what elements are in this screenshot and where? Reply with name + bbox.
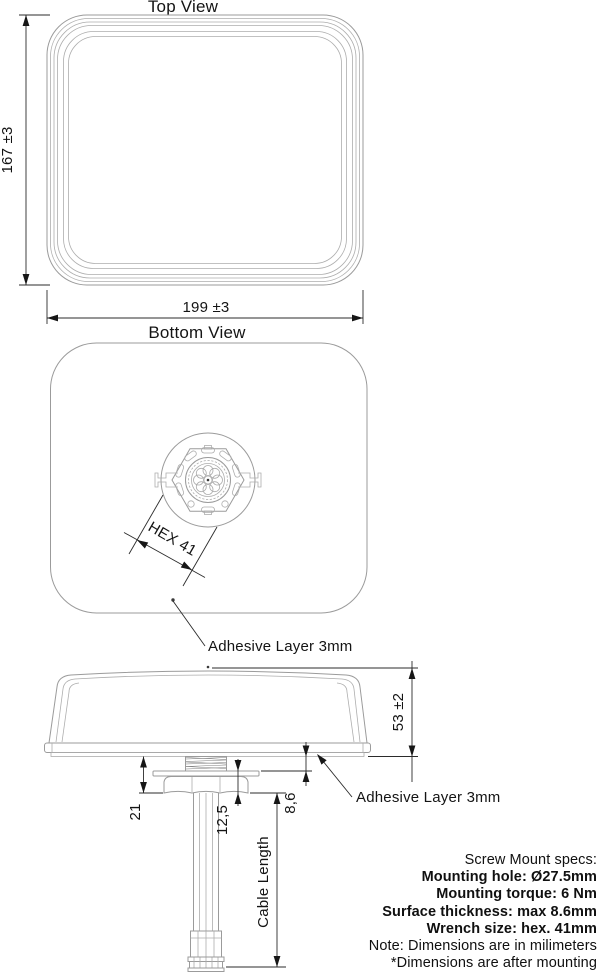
leader-adhesive-side: Adhesive Layer 3mm (314, 752, 500, 806)
connector-core (186, 458, 231, 503)
bottom-view-title: Bottom View (148, 323, 246, 342)
leader-adhesive-bottom: Adhesive Layer 3mm (171, 598, 352, 655)
spec-line-thickness: Surface thickness: max 8.6mm (369, 904, 597, 921)
spec-line-note: Note: Dimensions are in milimeters (369, 938, 597, 955)
technical-drawing: Top View 167 ±3 199 ±3 (0, 0, 600, 976)
hex-dim-label: HEX 41 (145, 519, 199, 560)
side-height-label: 53 ±2 (390, 693, 407, 731)
dim-53: 53 ±2 (212, 661, 418, 782)
cable-length-label: Cable Length (255, 836, 272, 928)
dim-21: 21 (127, 757, 163, 821)
adhesive-label-side: Adhesive Layer 3mm (356, 789, 501, 806)
cable-connector (188, 931, 224, 972)
top-view-width-label: 199 ±3 (183, 299, 230, 316)
dim-height-167: 167 ±3 (0, 15, 50, 285)
side-view-body (49, 666, 367, 743)
top-view-height-label: 167 ±3 (0, 127, 16, 174)
bottom-view: Bottom View (51, 323, 368, 655)
dim-width-199: 199 ±3 (47, 290, 363, 324)
thread-label: 8,6 (282, 792, 299, 813)
spec-line-hole: Mounting hole: Ø27.5mm (369, 869, 597, 886)
adhesive-layer (51, 753, 364, 757)
threaded-stud (186, 757, 227, 772)
top-view-outline (47, 15, 363, 285)
spec-line-wrench: Wrench size: hex. 41mm (369, 921, 597, 938)
nut-stack-label: 21 (127, 803, 144, 820)
spec-line-torque: Mounting torque: 6 Nm (369, 886, 597, 903)
flange (45, 743, 371, 753)
hex-nut (164, 777, 248, 794)
spec-note: Screw Mount specs: Mounting hole: Ø27.5m… (369, 852, 597, 972)
dim-cable-length: Cable Length (226, 793, 286, 967)
bottom-view-outline (51, 343, 368, 613)
top-view: Top View 167 ±3 199 ±3 (0, 0, 363, 324)
adhesive-label-bottom: Adhesive Layer 3mm (208, 638, 353, 655)
mount-connector (155, 433, 261, 527)
washer (153, 771, 259, 776)
spec-line-title: Screw Mount specs: (369, 852, 597, 869)
top-view-title: Top View (148, 0, 219, 16)
washer-nut-label: 12,5 (214, 805, 231, 835)
spec-line-mounting: *Dimensions are after mounting (369, 955, 597, 972)
